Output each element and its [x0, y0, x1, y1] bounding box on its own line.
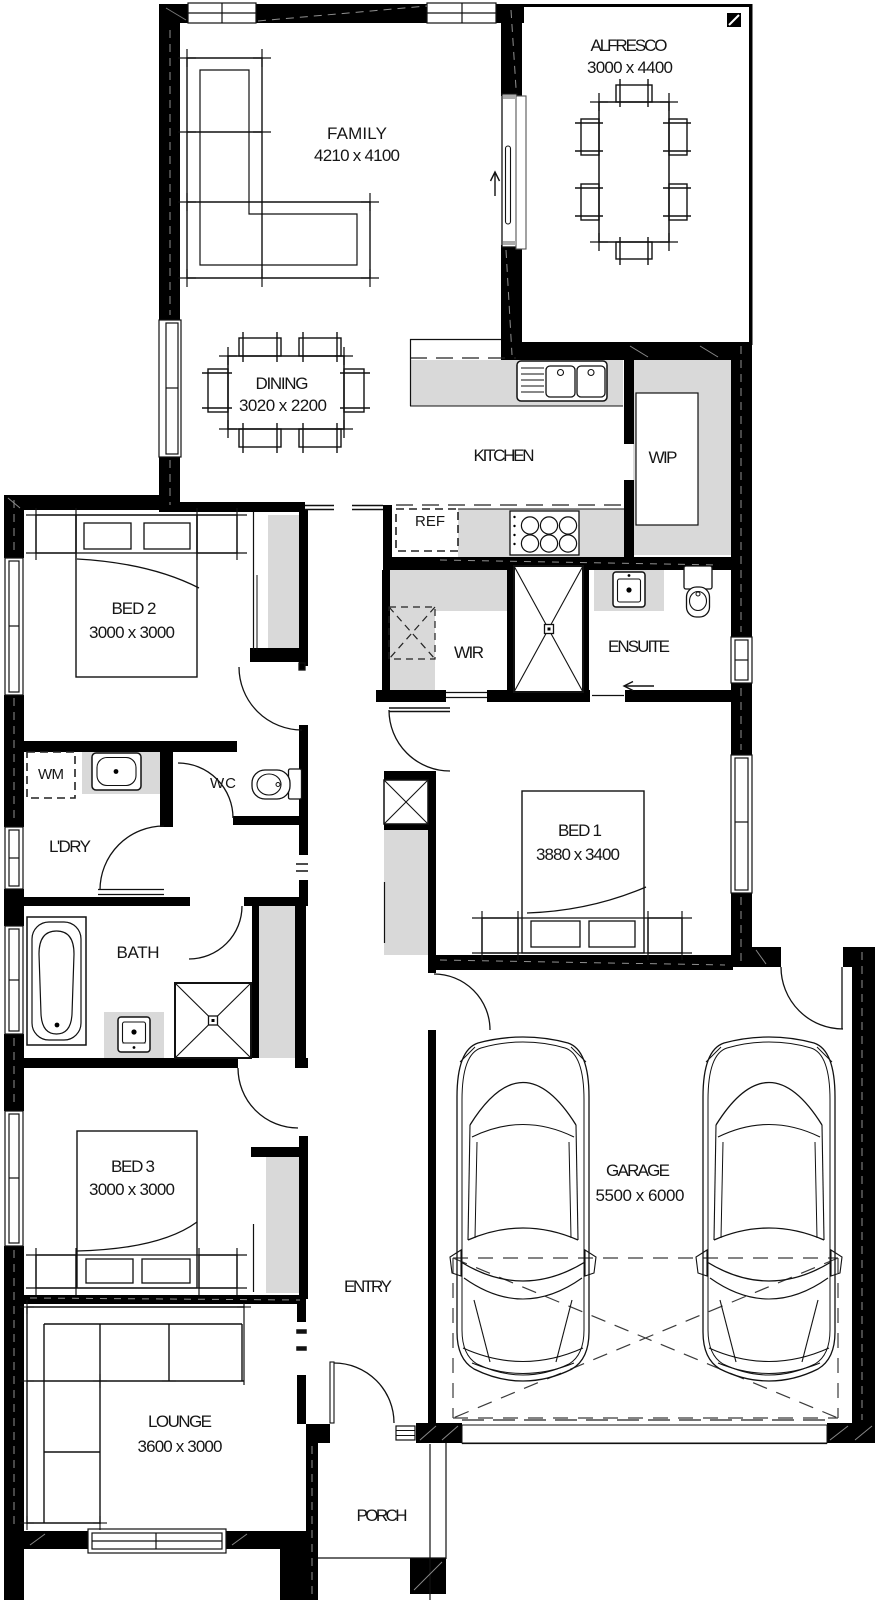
svg-text:WM: WM [38, 766, 64, 783]
svg-text:4210 x 4100: 4210 x 4100 [314, 146, 400, 165]
svg-text:BED 1: BED 1 [558, 821, 602, 840]
svg-text:3000 x 4400: 3000 x 4400 [587, 58, 673, 77]
svg-text:3000 x 3000: 3000 x 3000 [89, 623, 175, 642]
svg-text:5500 x 6000: 5500 x 6000 [596, 1186, 685, 1205]
svg-text:LOUNGE: LOUNGE [148, 1412, 212, 1431]
svg-text:KITCHEN: KITCHEN [474, 446, 535, 465]
svg-text:ENTRY: ENTRY [344, 1277, 392, 1296]
svg-text:REF: REF [415, 513, 445, 530]
svg-text:WIR: WIR [454, 643, 484, 662]
svg-text:BED 3: BED 3 [111, 1157, 155, 1176]
svg-text:3000 x 3000: 3000 x 3000 [89, 1180, 175, 1199]
svg-text:BATH: BATH [117, 943, 160, 962]
svg-text:WC: WC [210, 775, 236, 792]
svg-text:ALFRESCO: ALFRESCO [591, 36, 668, 55]
svg-text:DINING: DINING [256, 374, 309, 393]
svg-text:BED 2: BED 2 [112, 599, 157, 618]
svg-text:WIP: WIP [649, 448, 678, 467]
svg-text:PORCH: PORCH [357, 1506, 408, 1525]
svg-text:ENSUITE: ENSUITE [608, 637, 670, 656]
svg-text:L'DRY: L'DRY [49, 837, 91, 856]
svg-text:3600 x 3000: 3600 x 3000 [138, 1437, 223, 1456]
svg-text:3020 x 2200: 3020 x 2200 [239, 396, 327, 415]
svg-text:FAMILY: FAMILY [327, 124, 387, 143]
svg-text:3880 x 3400: 3880 x 3400 [536, 845, 620, 864]
svg-text:GARAGE: GARAGE [606, 1161, 670, 1180]
